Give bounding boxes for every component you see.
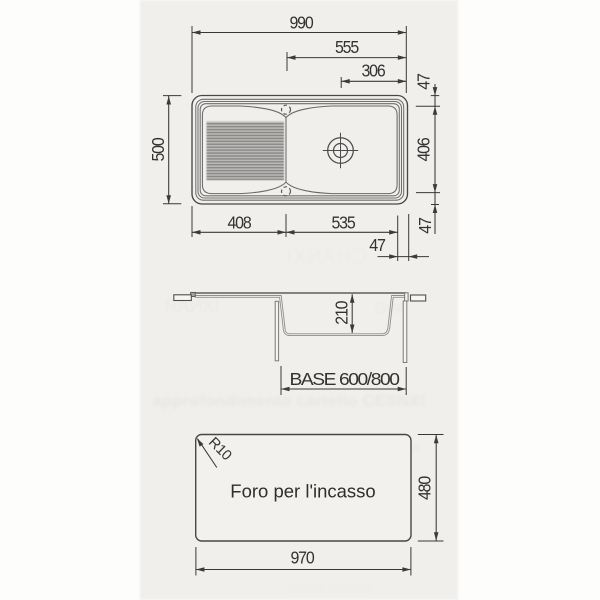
svg-text:306: 306 [362, 61, 386, 81]
svg-text:approfondimento cartello CESNX: approfondimento cartello CESNXI [153, 393, 425, 410]
svg-text:555: 555 [335, 37, 359, 57]
svg-text:480: 480 [414, 476, 434, 500]
svg-text:47: 47 [369, 235, 385, 255]
svg-text:47: 47 [415, 218, 435, 234]
svg-text:535: 535 [332, 213, 356, 233]
svg-text:CHANXI: CHANXI [285, 246, 367, 268]
svg-text:ollatrec otnem: ollatrec otnem [289, 580, 371, 595]
svg-text:408: 408 [228, 213, 252, 233]
svg-text:BASE 600/800: BASE 600/800 [290, 369, 401, 389]
svg-text:990: 990 [290, 13, 314, 33]
svg-text:500: 500 [148, 137, 168, 161]
svg-text:970: 970 [291, 548, 315, 568]
svg-text:Foro per l'incasso: Foro per l'incasso [230, 481, 375, 502]
svg-text:IXNAЯ: IXNAЯ [164, 296, 219, 316]
svg-text:210: 210 [332, 300, 352, 324]
svg-text:406: 406 [414, 138, 434, 162]
svg-text:47: 47 [413, 74, 433, 90]
